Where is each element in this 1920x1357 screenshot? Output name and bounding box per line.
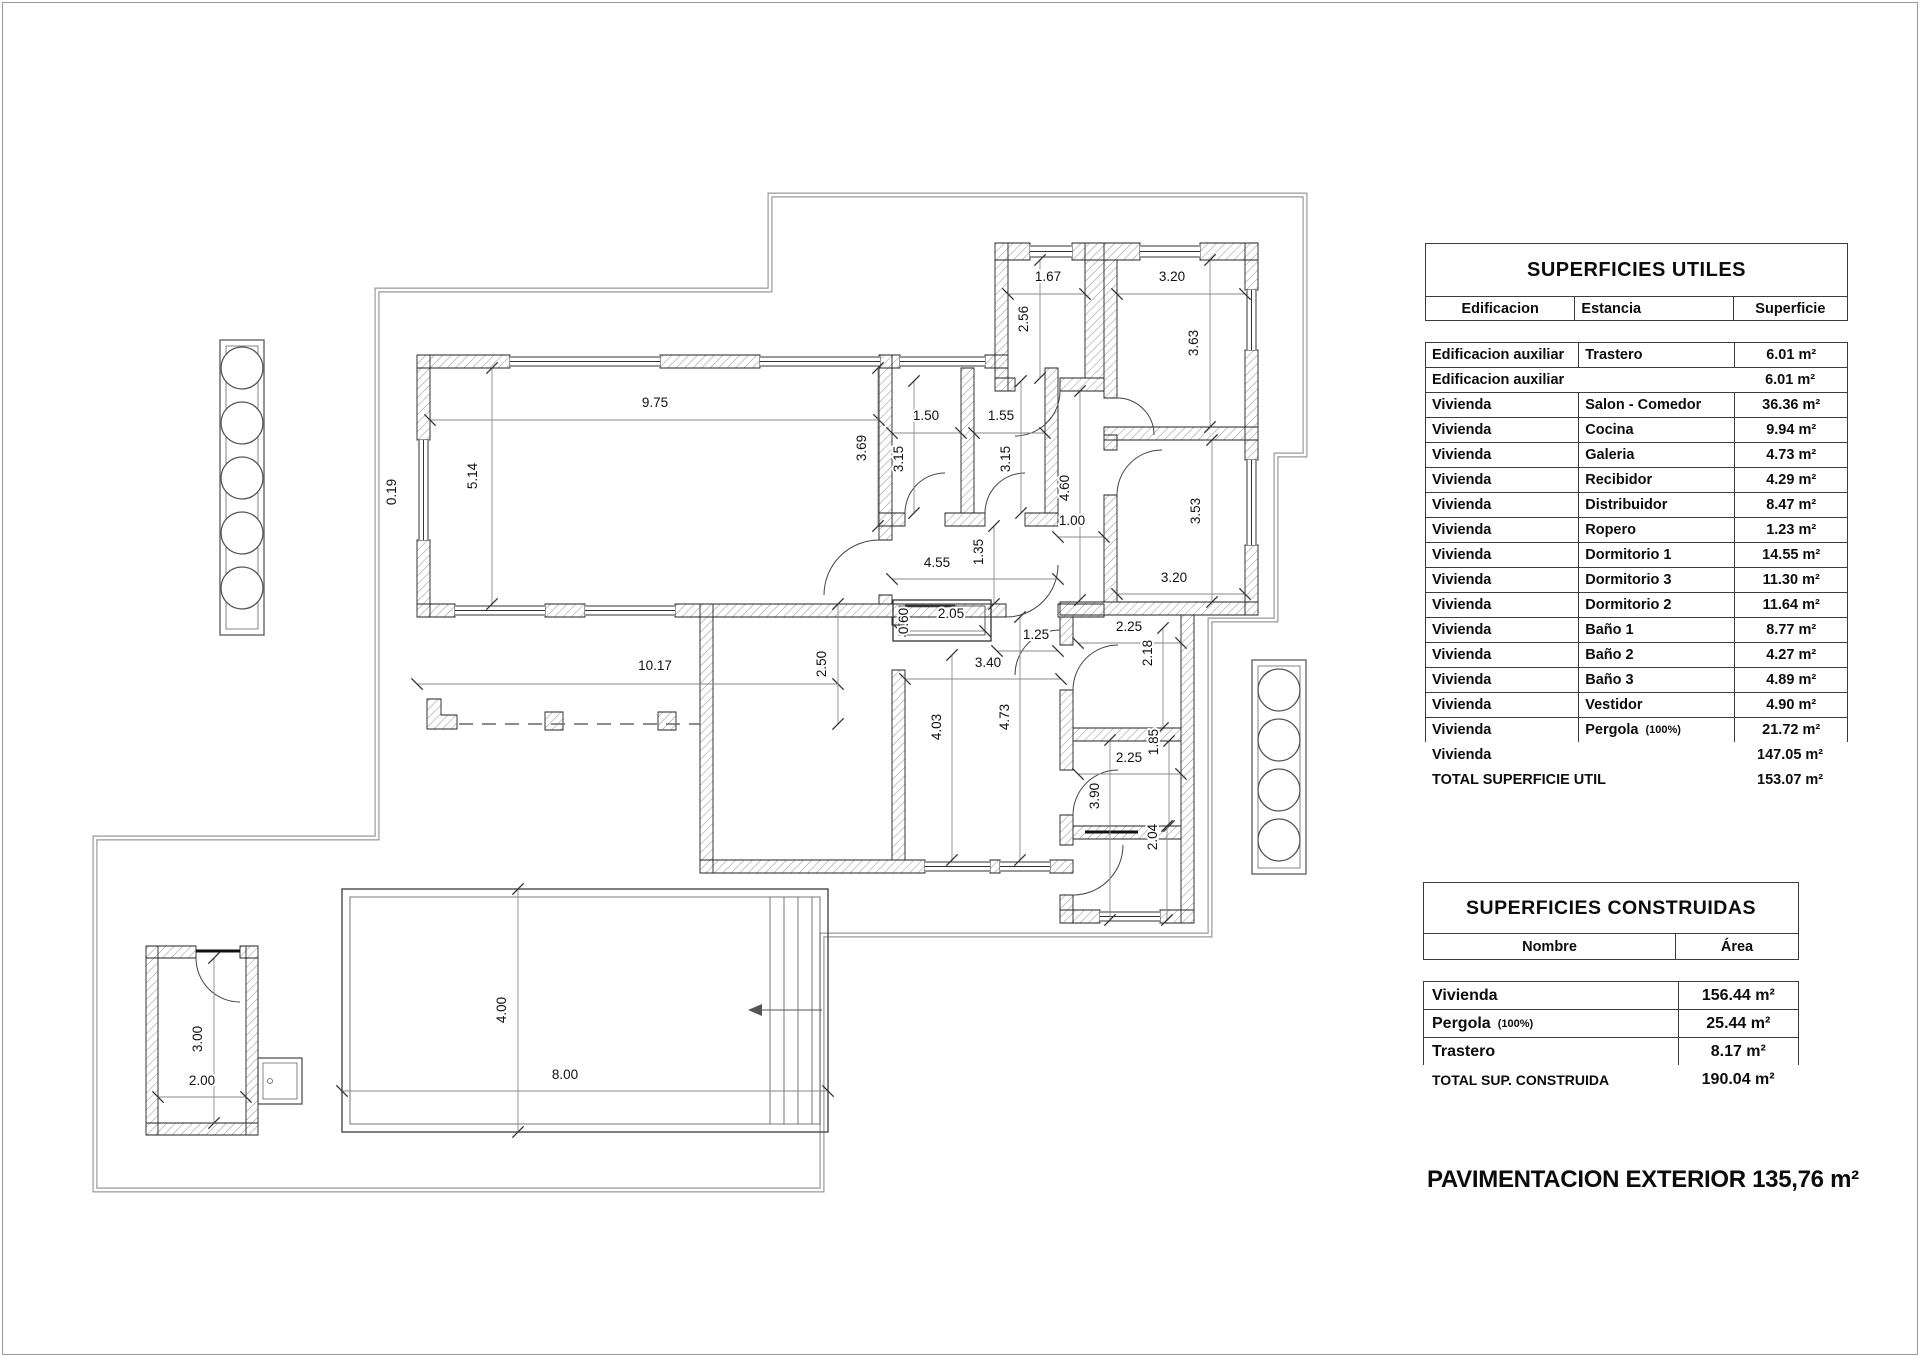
cell-estancia: Cocina [1578,418,1734,442]
table-total-row: TOTAL SUPERFICIE UTIL153.07 m² [1425,767,1848,793]
cell-estancia: Dormitorio 2 [1578,593,1734,617]
table-row: ViviendaPergola(100%)21.72 m² [1425,717,1848,743]
cell-superficie: 4.89 m² [1734,668,1847,692]
dimension-label: 2.56 [1016,306,1031,332]
table-row: ViviendaDistribuidor8.47 m² [1425,492,1848,518]
table-row: ViviendaCocina9.94 m² [1425,417,1848,443]
cell-edificacion: Vivienda [1426,493,1578,517]
cell-superficie: 8.47 m² [1734,493,1847,517]
dimension-label: 8.00 [552,1067,578,1082]
dimension-label: 10.17 [638,658,672,673]
cell-superficie: 6.01 m² [1734,343,1847,367]
cell-superficie: 4.90 m² [1734,693,1847,717]
total-label: Vivienda [1426,743,1733,767]
dimension-label: 3.15 [891,446,906,472]
cell-superficie: 11.30 m² [1734,568,1847,592]
dimension-label: 3.15 [998,446,1013,472]
cell-superficie: 4.73 m² [1734,443,1847,467]
dimension-label: 0.19 [384,479,399,505]
table-total-row: Vivienda147.05 m² [1425,742,1848,768]
cell-estancia: Recibidor [1578,468,1734,492]
cell-superficie: 11.64 m² [1734,593,1847,617]
cell-edificacion: Vivienda [1426,443,1578,467]
cell-estancia: Distribuidor [1578,493,1734,517]
table-superficies-construidas: SUPERFICIES CONSTRUIDAS NombreÁrea Vivie… [1423,882,1799,1094]
dimension-label: 3.40 [975,655,1001,670]
table-row: Edificacion auxiliar6.01 m² [1425,367,1848,393]
tree-planter-left [220,340,264,635]
tree-icon [221,347,263,609]
table-rows: Vivienda156.44 m²Pergola(100%)25.44 m²Tr… [1423,981,1799,1094]
table-row: ViviendaSalon - Comedor36.36 m² [1425,392,1848,418]
table-row: ViviendaDormitorio 114.55 m² [1425,542,1848,568]
tree-icon [1258,669,1300,861]
cell-edificacion: Vivienda [1426,543,1578,567]
cell-estancia: Ropero [1578,518,1734,542]
cell-estancia: Dormitorio 3 [1578,568,1734,592]
dimension-label: 3.53 [1188,498,1203,524]
dimension-label: 2.00 [189,1073,215,1088]
cell-superficie: 4.27 m² [1734,643,1847,667]
cell-nombre: Vivienda [1424,982,1678,1009]
cell-edificacion: Edificacion auxiliar [1426,343,1578,367]
dimension-label: 5.14 [465,462,480,489]
cell-nombre: Pergola(100%) [1424,1010,1678,1037]
cell-estancia: Galeria [1578,443,1734,467]
total-value: 153.07 m² [1733,768,1847,792]
dimension-label: 4.73 [997,704,1012,730]
table-row: Pergola(100%)25.44 m² [1423,1009,1799,1038]
table-row: ViviendaRopero1.23 m² [1425,517,1848,543]
table-row: ViviendaDormitorio 211.64 m² [1425,592,1848,618]
cell-edificacion: Edificacion auxiliar [1426,368,1733,392]
house-walls [146,243,1258,1135]
cell-superficie: 21.72 m² [1734,718,1847,742]
column-header: Superficie [1733,297,1847,320]
cell-estancia: Trastero [1578,343,1734,367]
dimension-label: 2.25 [1116,750,1142,765]
dimension-label: 1.00 [1059,513,1085,528]
table-header: EdificacionEstanciaSuperficie [1425,296,1848,321]
cell-superficie: 1.23 m² [1734,518,1847,542]
dimension-label: 2.18 [1140,640,1155,666]
dimension-label: 3.90 [1087,783,1102,809]
table-row: Vivienda156.44 m² [1423,981,1799,1010]
cell-superficie: 14.55 m² [1734,543,1847,567]
cell-edificacion: Vivienda [1426,693,1578,717]
exterior-paving-caption: PAVIMENTACION EXTERIOR 135,76 m² [1427,1166,1857,1194]
table-row: ViviendaGaleria4.73 m² [1425,442,1848,468]
dimension-label: 2.25 [1116,619,1142,634]
cell-edificacion: Vivienda [1426,643,1578,667]
window-icon [418,245,1257,922]
cell-superficie: 36.36 m² [1734,393,1847,417]
cell-estancia: Vestidor [1578,693,1734,717]
column-header: Área [1675,934,1798,959]
total-value: 190.04 m² [1678,1066,1798,1093]
table-row: ViviendaBaño 24.27 m² [1425,642,1848,668]
dimension-label: 9.75 [642,395,668,410]
column-header: Estancia [1574,297,1732,320]
cell-estancia: Baño 3 [1578,668,1734,692]
dimension-label: 4.00 [494,997,509,1023]
dimension-label: 2.04 [1145,823,1160,850]
cell-estancia: Baño 2 [1578,643,1734,667]
cell-edificacion: Vivienda [1426,518,1578,542]
cell-superficie: 4.29 m² [1734,468,1847,492]
dimension-label: 3.00 [190,1026,205,1052]
dimension-label: 1.50 [913,408,939,423]
column-header: Edificacion [1426,297,1574,320]
dimension-label: 1.85 [1146,729,1161,755]
table-header: NombreÁrea [1423,933,1799,960]
dimension-label: 1.25 [1023,627,1049,642]
dimension-label: 3.69 [854,435,869,461]
table-row: ViviendaRecibidor4.29 m² [1425,467,1848,493]
cell-estancia: Salon - Comedor [1578,393,1734,417]
tree-planter-right [1252,660,1306,874]
cell-edificacion: Vivienda [1426,468,1578,492]
dimension-label: 1.35 [971,539,986,565]
dimension-label: 1.55 [988,408,1014,423]
dimension-label: 2.50 [814,651,829,677]
cell-estancia: Dormitorio 1 [1578,543,1734,567]
dimension-label: 4.03 [929,714,944,740]
dimension-label: 1.67 [1035,269,1061,284]
cell-nombre: Trastero [1424,1038,1678,1065]
table-row: Edificacion auxiliarTrastero6.01 m² [1425,342,1848,368]
table-total-row: TOTAL SUP. CONSTRUIDA190.04 m² [1423,1065,1799,1094]
percent-note: (100%) [1498,1018,1533,1030]
cell-superficie: 8.77 m² [1734,618,1847,642]
cell-edificacion: Vivienda [1426,393,1578,417]
table-row: ViviendaVestidor4.90 m² [1425,692,1848,718]
cell-area: 25.44 m² [1678,1010,1798,1037]
total-label: TOTAL SUPERFICIE UTIL [1426,768,1733,792]
table-title: SUPERFICIES UTILES [1425,243,1848,297]
cell-superficie: 9.94 m² [1734,418,1847,442]
table-superficies-utiles: SUPERFICIES UTILES EdificacionEstanciaSu… [1425,243,1848,793]
table-row: Trastero8.17 m² [1423,1037,1799,1066]
percent-note: (100%) [1645,724,1680,736]
cell-edificacion: Vivienda [1426,718,1578,742]
door-arc-icon [196,391,1162,1002]
cell-edificacion: Vivienda [1426,618,1578,642]
table-rows: Edificacion auxiliarTrastero6.01 m²Edifi… [1425,342,1848,793]
trastero-annex [258,1058,302,1104]
pool [342,889,828,1132]
cell-area: 8.17 m² [1678,1038,1798,1065]
cell-estancia: Baño 1 [1578,618,1734,642]
table-row: ViviendaBaño 34.89 m² [1425,667,1848,693]
cell-superficie: 6.01 m² [1733,368,1847,392]
table-row: ViviendaDormitorio 311.30 m² [1425,567,1848,593]
dimension-label: 3.20 [1159,269,1185,284]
dimension-label: 4.60 [1057,475,1072,501]
table-row: ViviendaBaño 18.77 m² [1425,617,1848,643]
cell-edificacion: Vivienda [1426,668,1578,692]
dimension-label: 2.05 [938,606,964,621]
total-label: TOTAL SUP. CONSTRUIDA [1424,1066,1678,1093]
cell-edificacion: Vivienda [1426,568,1578,592]
column-header: Nombre [1424,934,1675,959]
dimension-label: 0.60 [896,608,911,634]
total-value: 147.05 m² [1733,743,1847,767]
cell-area: 156.44 m² [1678,982,1798,1009]
dimension-label: 3.63 [1186,330,1201,356]
cell-estancia: Pergola(100%) [1578,718,1734,742]
cell-edificacion: Vivienda [1426,418,1578,442]
cell-edificacion: Vivienda [1426,593,1578,617]
dimension-label: 4.55 [924,555,950,570]
table-title: SUPERFICIES CONSTRUIDAS [1423,882,1799,934]
dimension-label: 3.20 [1161,570,1187,585]
